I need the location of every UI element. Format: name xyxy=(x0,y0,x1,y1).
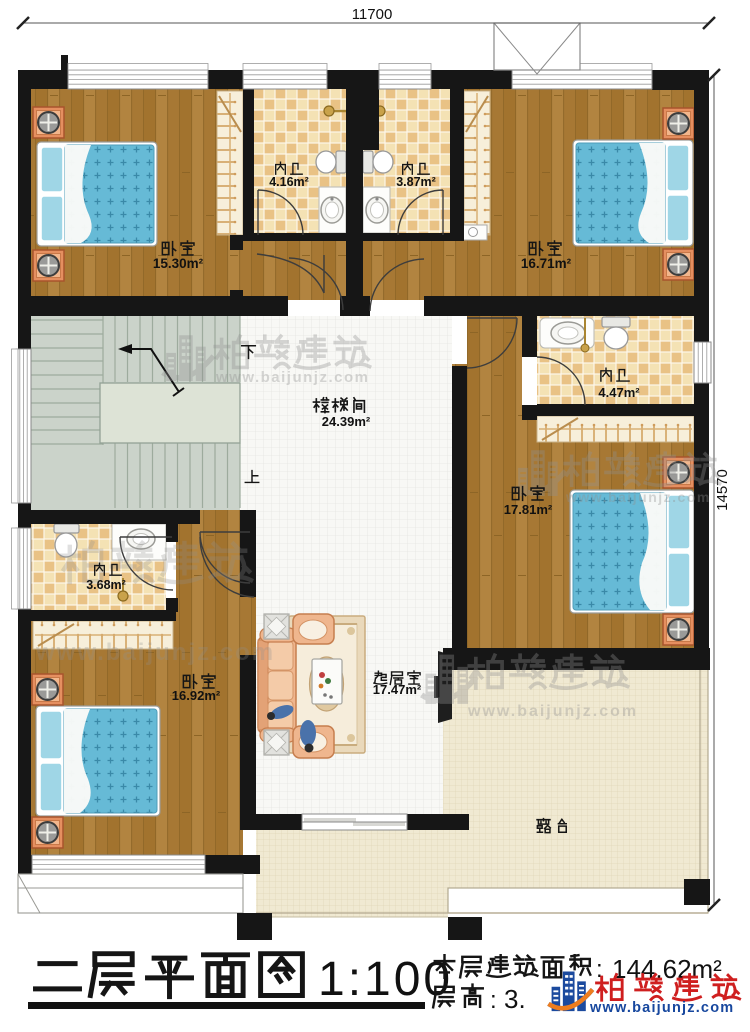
svg-text::: : xyxy=(490,987,497,1014)
svg-text:3.68m²: 3.68m² xyxy=(86,578,126,592)
svg-text:16.92m²: 16.92m² xyxy=(172,688,221,703)
svg-text:www.baijunjz.com: www.baijunjz.com xyxy=(565,489,711,505)
svg-text:3.87m²: 3.87m² xyxy=(396,175,436,189)
svg-text:144.62m²: 144.62m² xyxy=(612,954,722,984)
svg-text:11700: 11700 xyxy=(352,6,393,23)
svg-text:16.71m²: 16.71m² xyxy=(521,256,572,271)
svg-text:www.baijunjz.com: www.baijunjz.com xyxy=(589,1000,734,1016)
svg-text:24.39m²: 24.39m² xyxy=(322,414,371,429)
svg-text:www.baijunjz.com: www.baijunjz.com xyxy=(215,369,369,386)
svg-text:www.baijunjz.com: www.baijunjz.com xyxy=(467,703,638,720)
svg-text:17.81m²: 17.81m² xyxy=(504,502,553,517)
svg-text:3.: 3. xyxy=(504,984,526,1014)
svg-text:17.47m²: 17.47m² xyxy=(373,682,422,697)
svg-text:15.30m²: 15.30m² xyxy=(153,256,204,271)
svg-text:www.baijunjz.com: www.baijunjz.com xyxy=(35,639,275,666)
svg-text:4.16m²: 4.16m² xyxy=(269,175,309,189)
svg-text:1:100: 1:100 xyxy=(318,953,453,1006)
svg-text:4.47m²: 4.47m² xyxy=(598,385,640,400)
